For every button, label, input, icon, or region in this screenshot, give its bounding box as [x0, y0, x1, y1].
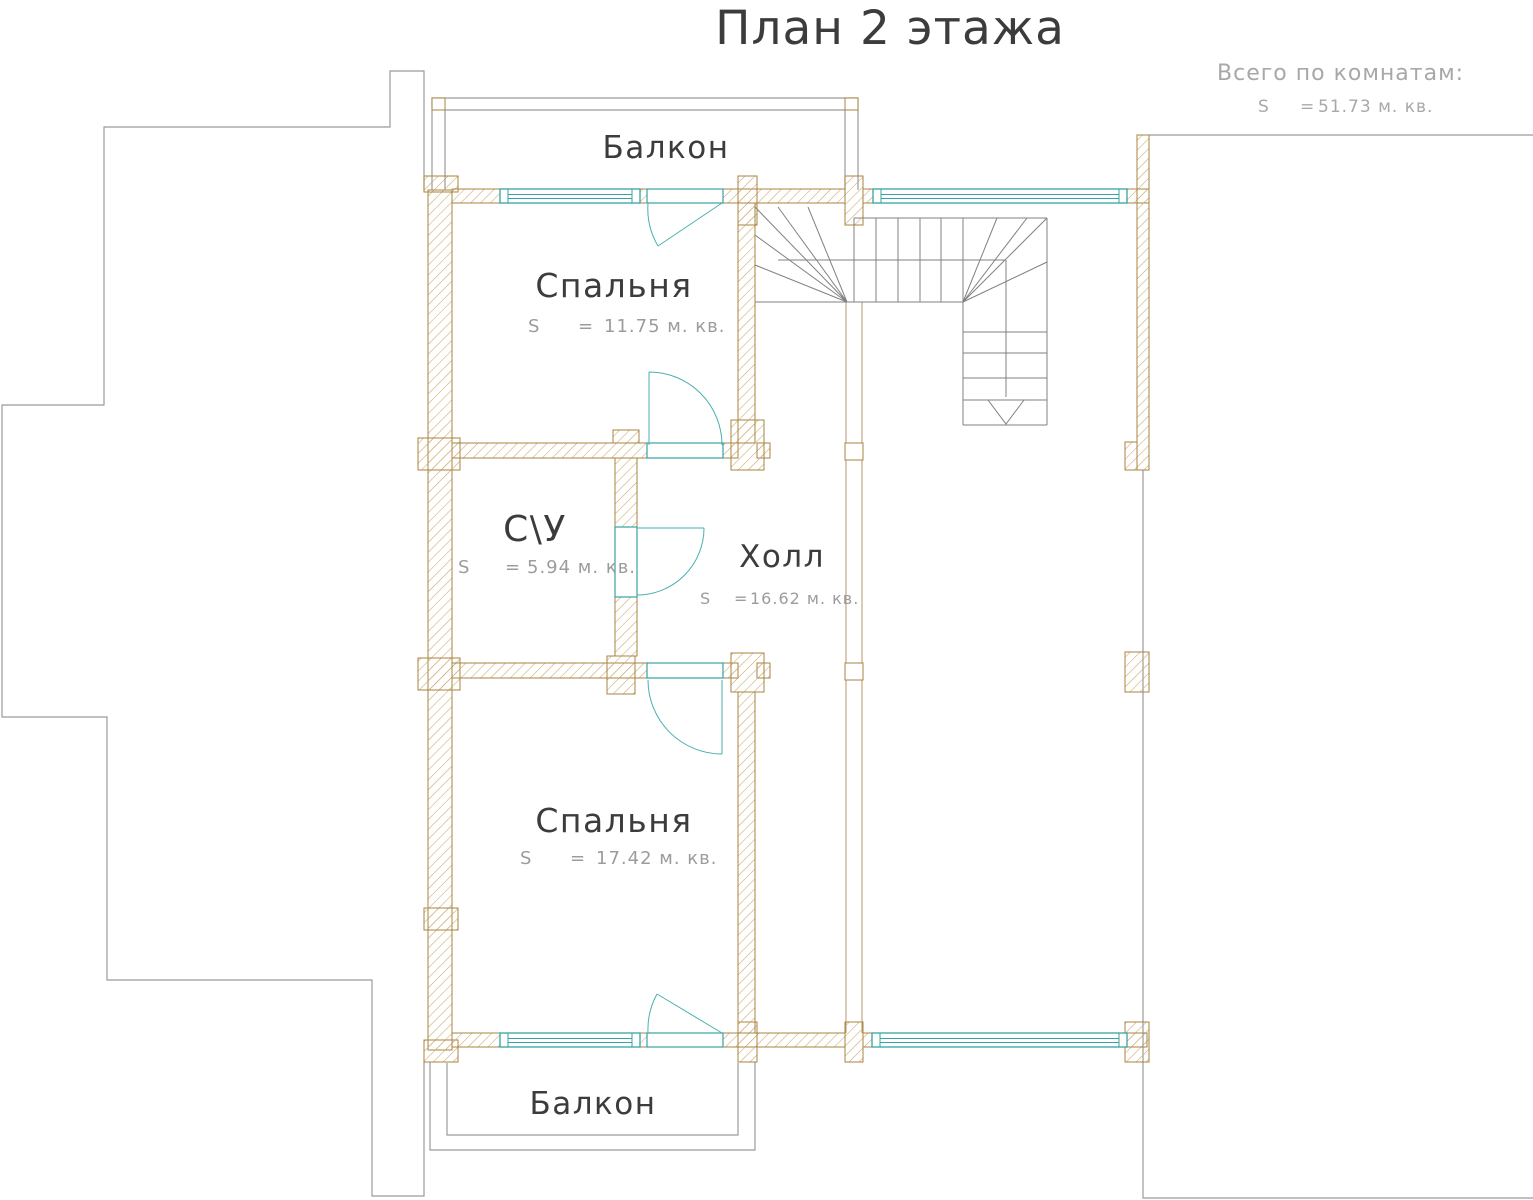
- area-value: 16.62 м. кв.: [750, 589, 859, 608]
- area-s: S: [458, 557, 470, 578]
- room-label-wc: С\У S = 5.94 м. кв.: [458, 509, 636, 578]
- window-bottom-left: [500, 1033, 640, 1047]
- summary-block: Всего по комнатам: S = 51.73 м. кв.: [1217, 61, 1464, 117]
- wall-joint: [1125, 652, 1149, 692]
- room-label-hall: Холл S = 16.62 м. кв.: [700, 539, 859, 608]
- area-eq: =: [570, 848, 586, 869]
- wall-bottom: [863, 1033, 872, 1047]
- area-s: S: [528, 316, 540, 337]
- window-top-left: [500, 189, 640, 203]
- area-eq: =: [734, 589, 748, 608]
- wall-joint: [731, 653, 764, 692]
- wall-top: [863, 189, 873, 203]
- window-bottom-right: [872, 1033, 1127, 1047]
- wall-interior-a: [452, 443, 647, 458]
- wall-right: [1137, 135, 1149, 470]
- wall-wc-right: [615, 458, 637, 527]
- door-bedroom2: [647, 663, 723, 754]
- summary-value: 51.73 м. кв.: [1318, 97, 1433, 117]
- area-value: 11.75 м. кв.: [604, 316, 725, 337]
- window-top-right: [873, 189, 1127, 203]
- summary-eq: =: [1300, 97, 1315, 117]
- wall-joint: [424, 908, 458, 930]
- wall-bedroom2-right: [738, 692, 755, 1033]
- door-balcony-top: [647, 189, 723, 246]
- area-eq: =: [578, 316, 594, 337]
- page-title: План 2 этажа: [715, 1, 1065, 56]
- area-eq: =: [505, 557, 521, 578]
- hall-partition-beam: [845, 302, 863, 1033]
- wall-joint: [613, 430, 639, 443]
- room-name: Спальня: [535, 266, 692, 305]
- wall-bottom: [452, 1033, 500, 1047]
- stairs-down-arrow: [988, 400, 1024, 424]
- wall-bedroom1-right: [738, 203, 755, 443]
- wall-bottom: [1127, 1033, 1147, 1047]
- door-bedroom1: [647, 372, 723, 458]
- balcony-corner-joint: [432, 98, 445, 110]
- door-balcony-bottom: [647, 994, 723, 1047]
- room-name: Спальня: [535, 801, 692, 840]
- balcony-corner-joint: [845, 98, 858, 110]
- stairs-walk-line: [778, 260, 1024, 424]
- room-label-balcony-top: Балкон: [602, 130, 729, 166]
- area-s: S: [700, 589, 711, 608]
- room-name: Холл: [739, 539, 825, 575]
- wall-wc-right: [615, 597, 637, 656]
- staircase: [755, 207, 1047, 425]
- beam-joint: [845, 443, 863, 460]
- room-label-bedroom2: Спальня S = 17.42 м. кв.: [520, 801, 717, 869]
- wall-joint: [845, 176, 863, 225]
- wall-joint: [1125, 442, 1137, 470]
- floor-plan-drawing: План 2 этажа Всего по комнатам: S = 51.7…: [0, 0, 1533, 1200]
- floor-plan-page: План 2 этажа Всего по комнатам: S = 51.7…: [0, 0, 1533, 1200]
- room-label-balcony-bottom: Балкон: [529, 1086, 656, 1122]
- wall-joint: [607, 656, 635, 694]
- wall-joint: [845, 1022, 863, 1062]
- wall-bottom: [640, 1033, 647, 1047]
- summary-label: Всего по комнатам:: [1217, 61, 1464, 86]
- beam-joint: [845, 663, 863, 680]
- summary-s: S: [1258, 97, 1270, 117]
- area-value: 17.42 м. кв.: [596, 848, 717, 869]
- area-s: S: [520, 848, 532, 869]
- wall-top: [640, 189, 647, 203]
- area-value: 5.94 м. кв.: [527, 557, 636, 578]
- room-label-bedroom1: Спальня S = 11.75 м. кв.: [528, 266, 725, 337]
- room-name: С\У: [503, 509, 567, 550]
- wall-top: [452, 189, 500, 203]
- lower-floor-outline: [2, 71, 1533, 1198]
